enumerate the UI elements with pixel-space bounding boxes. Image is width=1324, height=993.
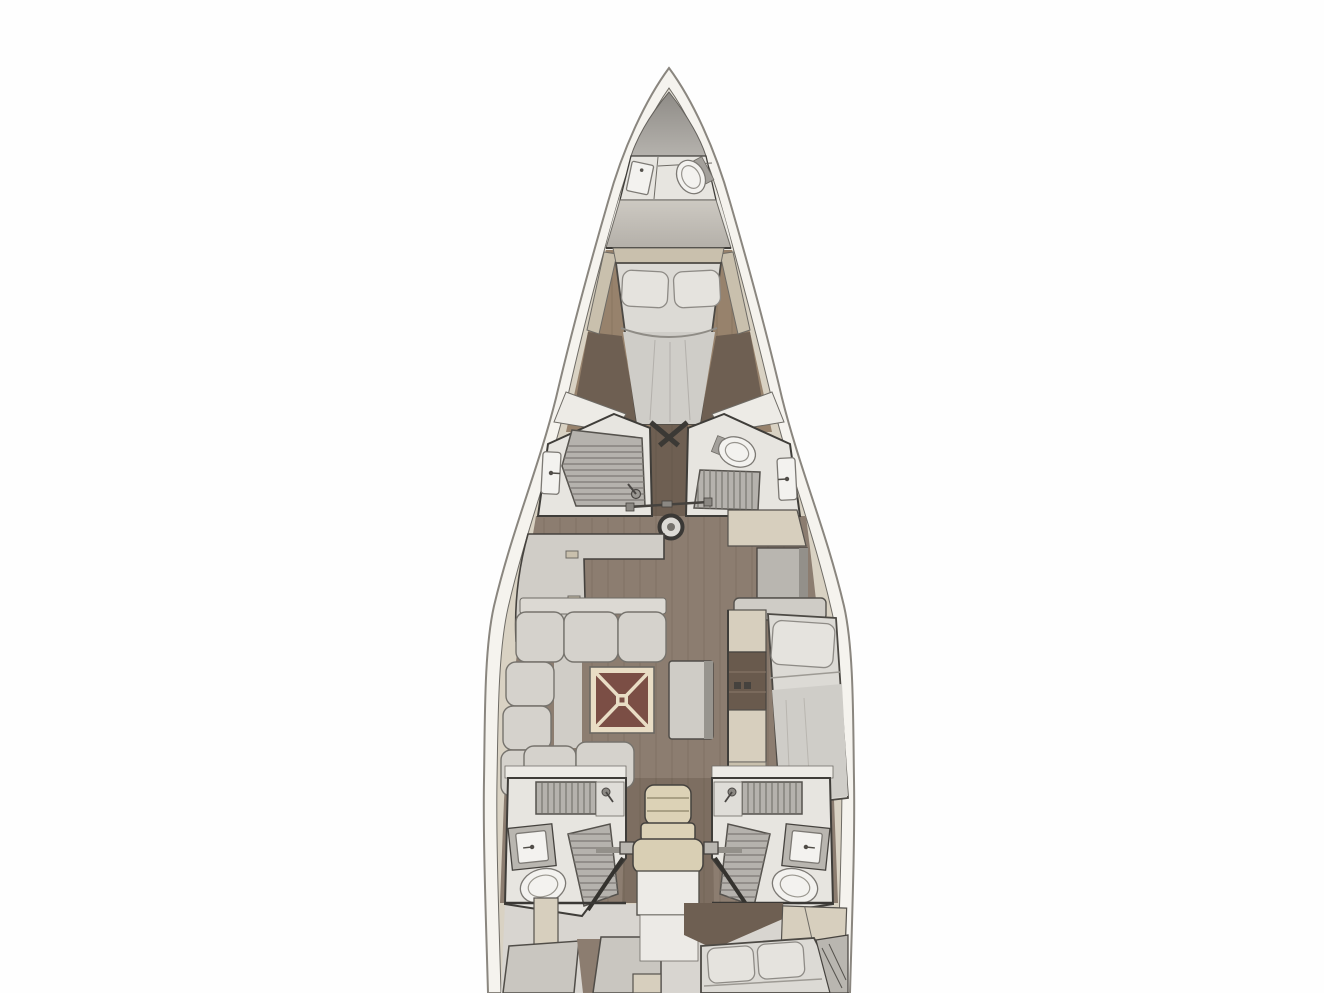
starboard-aft-cabin (684, 903, 848, 993)
yacht-layout-plan (0, 0, 1324, 993)
cabin-divider (534, 898, 558, 946)
sofa-cushion (506, 662, 554, 706)
handrail-right (716, 847, 742, 853)
nav-locker-side (799, 548, 808, 598)
table-center-dot (620, 698, 625, 703)
latch (734, 682, 741, 689)
bow-head (620, 153, 716, 200)
aft-sink (508, 824, 556, 870)
sofa-cushion (564, 612, 618, 662)
aft-sink (782, 824, 830, 870)
bar-fitting (662, 501, 672, 507)
salon-bench (669, 661, 713, 739)
step-bottom (633, 839, 703, 873)
cabin-step (633, 974, 661, 993)
berth-cushion (503, 941, 579, 993)
forward-bulkhead (606, 200, 731, 248)
rail-post-left (620, 842, 634, 854)
mast-center (667, 523, 675, 531)
bar-fitting (626, 503, 634, 511)
handrail-left (596, 847, 622, 853)
sofa-cushion (503, 706, 551, 750)
starboard-aft-head-top (712, 766, 833, 778)
bar-fitting (704, 498, 712, 506)
starboard-head-sink (777, 458, 797, 501)
sofa-seat-slab (554, 652, 582, 748)
nav-sideboard (728, 510, 806, 546)
berth-pillow (771, 620, 836, 668)
headboard (613, 248, 724, 263)
galley-latch (566, 551, 578, 558)
pillow (707, 945, 755, 983)
berth-cabinet (728, 610, 766, 652)
bench-edge (704, 661, 713, 739)
rail-post-right (704, 842, 718, 854)
bed-pillow-right (673, 270, 721, 308)
berth-shelf-dark (728, 652, 766, 710)
sofa-cushion (516, 612, 564, 662)
berth-cabinet (728, 710, 766, 762)
sofa-cushion (618, 612, 666, 662)
latch (744, 682, 751, 689)
salon-table (590, 667, 654, 733)
bed-pillow-left (621, 270, 669, 308)
yacht-layout-canvas (0, 0, 1324, 993)
step-backrest (645, 785, 691, 825)
pillow (757, 941, 805, 979)
port-head-sink (541, 452, 561, 495)
port-aft-head-top (505, 766, 626, 778)
blanket (623, 332, 715, 424)
